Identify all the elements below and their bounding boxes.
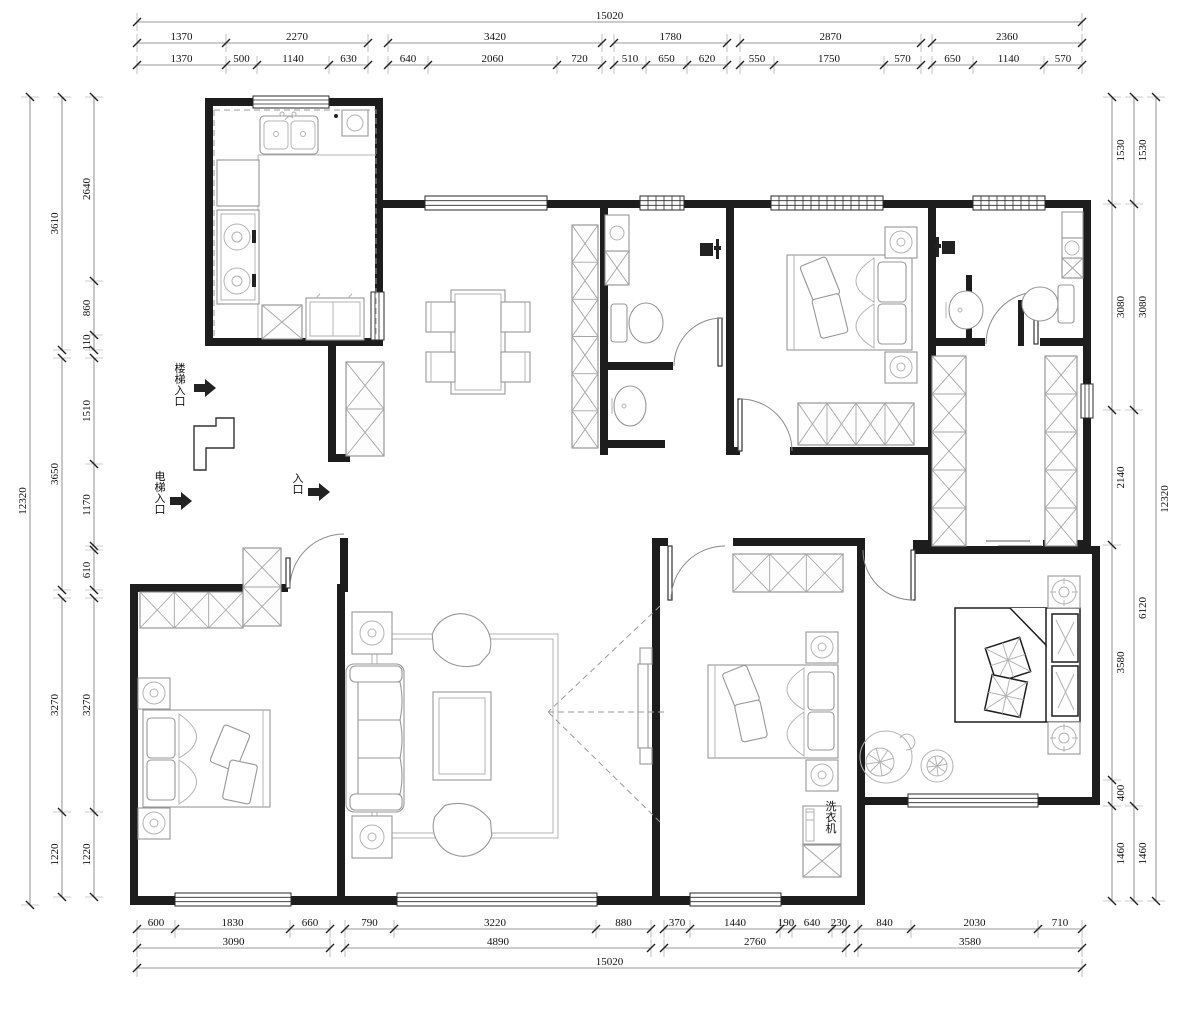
floor-plan-page: 1502013702270342017802870236013705001140… — [0, 0, 1200, 1014]
bed — [143, 710, 270, 807]
dimension-label: 1440 — [724, 917, 747, 929]
wardrobe-xbox — [1045, 356, 1077, 546]
wardrobe-xbox — [1062, 258, 1083, 278]
kitchen-sliding-door — [371, 292, 384, 340]
wall-segment — [733, 538, 862, 546]
dimension-chain: 15101170 — [81, 354, 103, 550]
dining-chair — [501, 302, 530, 332]
dimension-chain: 32701220 — [49, 594, 71, 901]
dining-chair — [426, 302, 455, 332]
dimension-label: 3580 — [959, 936, 982, 948]
wall-segment — [328, 338, 336, 462]
dimension-chain: 1780 — [610, 31, 731, 52]
middle-bedroom-door — [668, 546, 725, 600]
toilet — [1022, 285, 1074, 323]
floor-plan-canvas: 1502013702270342017802870236013705001140… — [0, 0, 1200, 1014]
nightstand — [138, 678, 170, 709]
wall-segment — [857, 538, 865, 905]
wall-segment — [913, 540, 933, 548]
dining-chair — [426, 352, 455, 382]
bed — [708, 665, 838, 758]
wardrobe-xbox — [262, 305, 302, 339]
dimension-label: 620 — [699, 53, 716, 65]
dimension-chain: 15303080214035804001460 — [1103, 93, 1127, 905]
dimension-label: 1370 — [171, 53, 194, 65]
wall-segment — [603, 440, 665, 448]
dimension-label: 3270 — [81, 694, 93, 717]
dimension-label: 3420 — [484, 31, 507, 43]
dimension-label: 1370 — [171, 31, 194, 43]
dimension-label: 650 — [658, 53, 675, 65]
wall-segment — [1083, 200, 1091, 548]
sofa — [346, 664, 404, 812]
dimension-chain: 2870 — [736, 31, 925, 52]
stairs-arrow-icon — [194, 379, 216, 397]
dimension-label: 15020 — [596, 956, 624, 968]
nightstand — [806, 760, 838, 791]
dimension-label: 3220 — [484, 917, 507, 929]
dimension-chain: 3701440190640230 — [660, 917, 850, 938]
dimension-label: 660 — [302, 917, 319, 929]
plant — [921, 750, 953, 782]
middle-bedroom — [708, 632, 841, 844]
dimension-label: 1220 — [81, 843, 93, 866]
wardrobe-xbox — [572, 225, 598, 448]
cabinet — [1062, 238, 1083, 258]
dimension-label: 1460 — [1137, 842, 1149, 865]
dimension-label: 3080 — [1115, 296, 1127, 319]
label-washing-machine: 洗衣机 — [826, 800, 837, 835]
dining-table — [451, 290, 505, 394]
refrigerator — [306, 294, 364, 340]
master-bathroom — [934, 212, 1083, 329]
dimension-label: 2640 — [81, 178, 93, 201]
bedroom1-door — [286, 534, 344, 588]
kitchen-stove — [217, 210, 259, 304]
wall-segment — [652, 538, 668, 546]
armchair — [425, 796, 498, 864]
dimension-chain: 2760 — [660, 936, 850, 957]
dimension-chain: 15020 — [133, 956, 1086, 977]
dimension-chain: 8402030710 — [854, 917, 1086, 938]
dimension-label: 3650 — [49, 463, 61, 486]
dimension-label: 2270 — [286, 31, 309, 43]
dimension-label: 550 — [749, 53, 766, 65]
bedroom-2 — [787, 227, 917, 383]
dimension-chain: 3090 — [133, 936, 334, 957]
dimension-chain: 5501750570 — [736, 53, 925, 74]
dimension-label: 2060 — [482, 53, 505, 65]
dimension-chain: 15020 — [133, 10, 1086, 31]
window — [253, 96, 329, 108]
dimension-label: 1460 — [1115, 842, 1127, 865]
side-table — [352, 612, 392, 654]
cabinet — [605, 215, 629, 251]
dimension-label: 400 — [1115, 784, 1127, 801]
window — [771, 196, 883, 210]
dimension-label: 1780 — [660, 31, 683, 43]
label-entrance: 入口 — [293, 472, 304, 496]
dimension-label: 640 — [400, 53, 417, 65]
dimension-label: 630 — [340, 53, 357, 65]
coffee-table — [433, 692, 491, 780]
wardrobe-xbox — [798, 403, 914, 445]
elevator-arrow-icon — [170, 492, 192, 510]
dimension-chain: 2360 — [928, 31, 1086, 52]
dimension-label: 570 — [894, 53, 911, 65]
wardrobe-xbox — [605, 251, 629, 285]
window — [175, 893, 291, 906]
dimension-label: 640 — [804, 917, 821, 929]
entry-arrow-icon — [308, 483, 330, 501]
tv-cabinet — [638, 648, 652, 764]
dimension-chain: 13702270 — [133, 31, 372, 52]
label-elevator-entrance: 电梯入口 — [155, 470, 166, 516]
armchair — [425, 606, 498, 674]
dimension-label: 3090 — [223, 936, 246, 948]
kitchen-corner-unit — [334, 110, 368, 136]
wall-segment — [337, 584, 345, 905]
dimension-label: 860 — [81, 299, 93, 316]
window — [690, 893, 781, 906]
dimension-chain: 32701220 — [81, 594, 103, 901]
kitchen-counter-cabinet — [217, 160, 259, 206]
dimension-label: 2140 — [1115, 466, 1127, 489]
bathroom-1 — [605, 215, 721, 426]
dimension-label: 1220 — [49, 843, 61, 866]
dimension-label: 720 — [571, 53, 588, 65]
dimension-label: 710 — [1052, 917, 1069, 929]
dimension-label: 500 — [233, 53, 250, 65]
wall-segment — [130, 584, 138, 904]
dimension-label: 1170 — [81, 494, 93, 516]
dimension-chain: 3420 — [384, 31, 606, 52]
dimension-chain: 3580 — [854, 936, 1086, 957]
window — [1081, 384, 1093, 418]
bed-master — [955, 608, 1080, 722]
wall-segment — [1040, 338, 1083, 346]
wall-segment — [928, 338, 985, 346]
dimension-label: 190 — [778, 917, 795, 929]
wall-segment — [652, 546, 660, 905]
wall-segment — [726, 208, 734, 455]
label-stairs-entrance: 楼梯入口 — [175, 361, 186, 408]
closet-sliding-door — [986, 541, 1042, 546]
wardrobe-xbox — [140, 592, 243, 628]
sink — [946, 291, 983, 329]
bedroom2-door — [738, 399, 792, 451]
dimension-label: 230 — [831, 917, 848, 929]
nightstand — [138, 808, 170, 839]
wall-segment — [790, 447, 936, 455]
shower-head-icon — [934, 237, 955, 257]
dimension-label: 790 — [361, 917, 378, 929]
dimension-label: 1140 — [998, 53, 1020, 65]
wardrobe-xbox — [932, 356, 966, 546]
dimension-label: 110 — [81, 334, 93, 351]
dimension-label: 3080 — [1137, 296, 1149, 319]
dimension-label: 3270 — [49, 694, 61, 717]
dimension-label: 2870 — [820, 31, 843, 43]
cabinet — [1062, 212, 1083, 238]
dining-chair — [501, 352, 530, 382]
dimension-label: 1530 — [1115, 139, 1127, 162]
nightstand — [885, 227, 917, 258]
dimension-label: 1750 — [818, 53, 841, 65]
dimension-label: 3580 — [1115, 651, 1127, 674]
dimension-chains: 1502013702270342017802870236013705001140… — [17, 10, 1171, 977]
entry-hall — [170, 379, 330, 510]
window — [640, 196, 684, 210]
dimension-chain: 6001830660 — [133, 917, 334, 938]
dimension-label: 1530 — [1137, 139, 1149, 162]
wardrobe-xbox — [803, 845, 841, 877]
dimension-label: 570 — [1055, 53, 1072, 65]
window — [908, 794, 1038, 807]
dimension-label: 2760 — [744, 936, 767, 948]
wardrobe-xbox — [346, 362, 384, 456]
nightstand — [1048, 722, 1080, 754]
bathroom1-door — [674, 318, 722, 366]
dimension-label: 650 — [944, 53, 961, 65]
wall-segment — [1092, 546, 1100, 805]
dimension-label: 2360 — [996, 31, 1019, 43]
sink — [612, 386, 646, 426]
dimension-chain: 7903220880 — [341, 917, 655, 938]
dimension-label: 3610 — [49, 212, 61, 235]
dimension-chain: 12320 — [1147, 93, 1171, 905]
dimension-label: 6120 — [1137, 597, 1149, 620]
bedroom-1 — [138, 678, 270, 839]
dimension-chain: 510650620 — [610, 53, 731, 74]
dimension-chain: 610 — [81, 546, 103, 594]
dimension-label: 1140 — [282, 53, 304, 65]
dimension-label: 4890 — [487, 936, 510, 948]
shaft-column — [194, 418, 234, 470]
dimension-chain: 13705001140630 — [133, 53, 372, 74]
dimension-label: 12320 — [17, 487, 29, 515]
dimension-label: 15020 — [596, 10, 624, 22]
dimension-label: 370 — [669, 917, 686, 929]
dimension-label: 840 — [876, 917, 893, 929]
side-table — [352, 816, 392, 858]
kitchen-sink — [260, 112, 318, 154]
wall-segment — [340, 538, 348, 592]
wardrobe-xbox — [243, 548, 281, 626]
plant — [860, 731, 915, 783]
dimension-chain: 4890 — [341, 936, 655, 957]
window — [973, 196, 1045, 210]
dimension-chain: 6501140570 — [928, 53, 1086, 74]
master-bedroom-door — [863, 550, 915, 600]
shower-head-icon — [700, 239, 721, 259]
bed — [787, 255, 912, 350]
nightstand — [806, 632, 838, 663]
window — [397, 893, 597, 906]
toilet — [611, 303, 663, 343]
dimension-chain: 3650 — [49, 354, 71, 594]
nightstand — [1048, 576, 1080, 608]
dimension-chain: 1530308061201460 — [1125, 93, 1149, 905]
dimension-chain: 2640860110 — [81, 93, 103, 354]
dimension-label: 1830 — [222, 917, 245, 929]
dimension-chain: 12320 — [17, 93, 39, 909]
dimension-label: 610 — [81, 561, 93, 578]
living-room — [346, 606, 665, 864]
dimension-label: 2030 — [964, 917, 987, 929]
nightstand — [885, 352, 917, 383]
wall-segment — [205, 98, 213, 346]
wall-segment — [603, 362, 673, 370]
dimension-label: 880 — [615, 917, 632, 929]
dimension-label: 600 — [148, 917, 165, 929]
wardrobe-xbox — [733, 554, 843, 592]
window — [425, 196, 547, 210]
dimension-label: 12320 — [1159, 485, 1171, 513]
dimension-label: 1510 — [81, 400, 93, 423]
dimension-chain: 3610 — [49, 93, 71, 354]
dimension-chain: 6402060720 — [384, 53, 606, 74]
dimension-label: 510 — [622, 53, 639, 65]
master-bedroom — [860, 576, 1080, 783]
dining-area — [426, 290, 530, 394]
